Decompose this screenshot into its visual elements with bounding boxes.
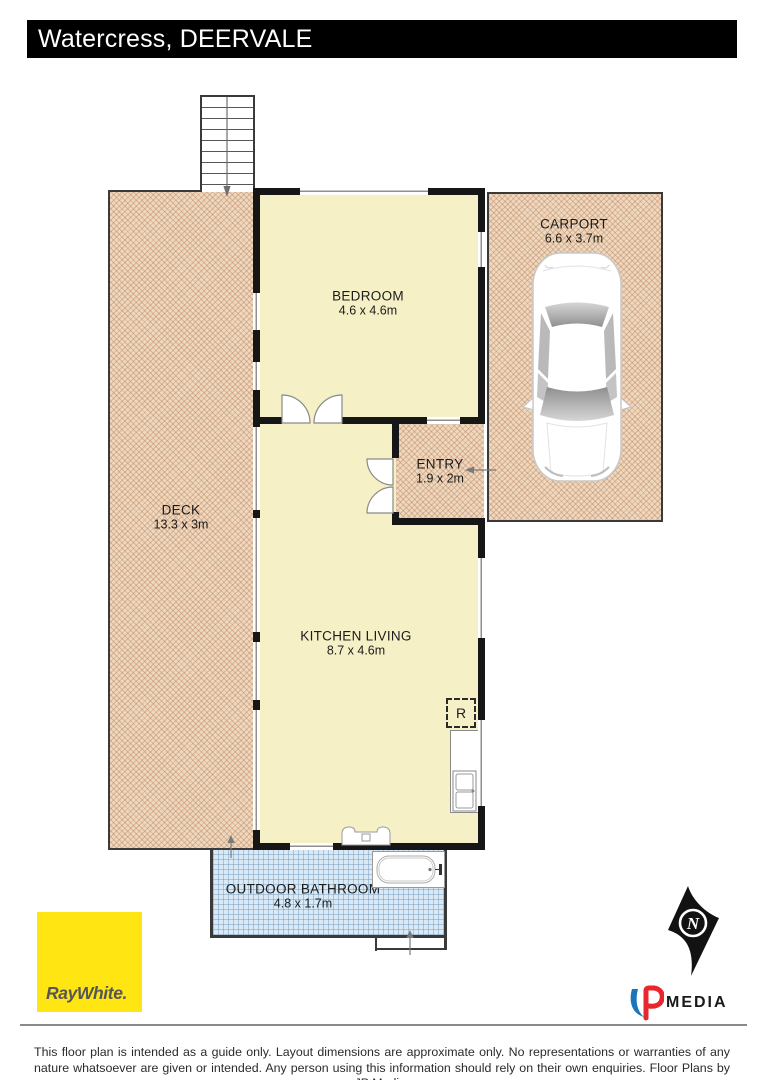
window: [253, 710, 260, 830]
jp-media-logo: N MEDIA: [628, 885, 758, 1020]
deck-entry-arrow-icon: [226, 835, 236, 859]
ray-white-wordmark: RayWhite.: [46, 983, 127, 1004]
disclaimer-text: This floor plan is intended as a guide o…: [34, 1045, 730, 1080]
north-arrow-icon: N: [662, 885, 722, 977]
window: [300, 188, 428, 195]
sliding-door: [253, 518, 260, 632]
wall: [478, 188, 485, 424]
wall: [342, 417, 399, 424]
bathtub-icon: [372, 851, 445, 888]
car-icon: [521, 251, 633, 483]
wall: [392, 417, 399, 458]
entry-double-door: [364, 458, 394, 514]
bedroom-label: BEDROOM 4.6 x 4.6m: [332, 289, 404, 318]
title-bar: Watercress, DEERVALE: [27, 20, 737, 58]
footer-divider: [20, 1024, 747, 1026]
window: [290, 843, 333, 850]
compass-letter: N: [686, 914, 700, 933]
ray-white-logo: RayWhite.: [37, 912, 142, 1012]
bedroom-double-door: [281, 386, 343, 424]
page-title: Watercress, DEERVALE: [38, 25, 312, 54]
window: [253, 362, 260, 390]
window: [253, 427, 260, 510]
deck-label: DECK 13.3 x 3m: [154, 503, 209, 532]
fridge-box: R: [446, 698, 476, 728]
window: [478, 232, 485, 267]
window: [478, 720, 485, 806]
bathroom-step-right: [444, 938, 447, 950]
window: [253, 642, 260, 700]
jp-mark-icon: [628, 985, 664, 1021]
carport-label: CARPORT 6.6 x 3.7m: [540, 217, 608, 246]
kitchen-living-label: KITCHEN LIVING 8.7 x 4.6m: [300, 629, 411, 658]
stairs-down-arrow-icon: [222, 97, 232, 197]
sink-icon: [452, 770, 477, 812]
floor-plan-page: Watercress, DEERVALE: [0, 0, 763, 1080]
bathroom-entry-arrow-icon: [405, 930, 415, 956]
wall: [392, 518, 485, 525]
outdoor-bathroom-label: OUTDOOR BATHROOM 4.8 x 1.7m: [226, 882, 381, 911]
heater-icon: [340, 824, 392, 846]
fridge-label: R: [456, 705, 466, 721]
entry-label: ENTRY 1.9 x 2m: [416, 457, 464, 486]
window: [478, 558, 485, 638]
entry-arrow-icon: [465, 465, 497, 475]
window: [427, 417, 460, 424]
jp-media-wordmark: MEDIA: [628, 985, 758, 1021]
window: [253, 293, 260, 330]
